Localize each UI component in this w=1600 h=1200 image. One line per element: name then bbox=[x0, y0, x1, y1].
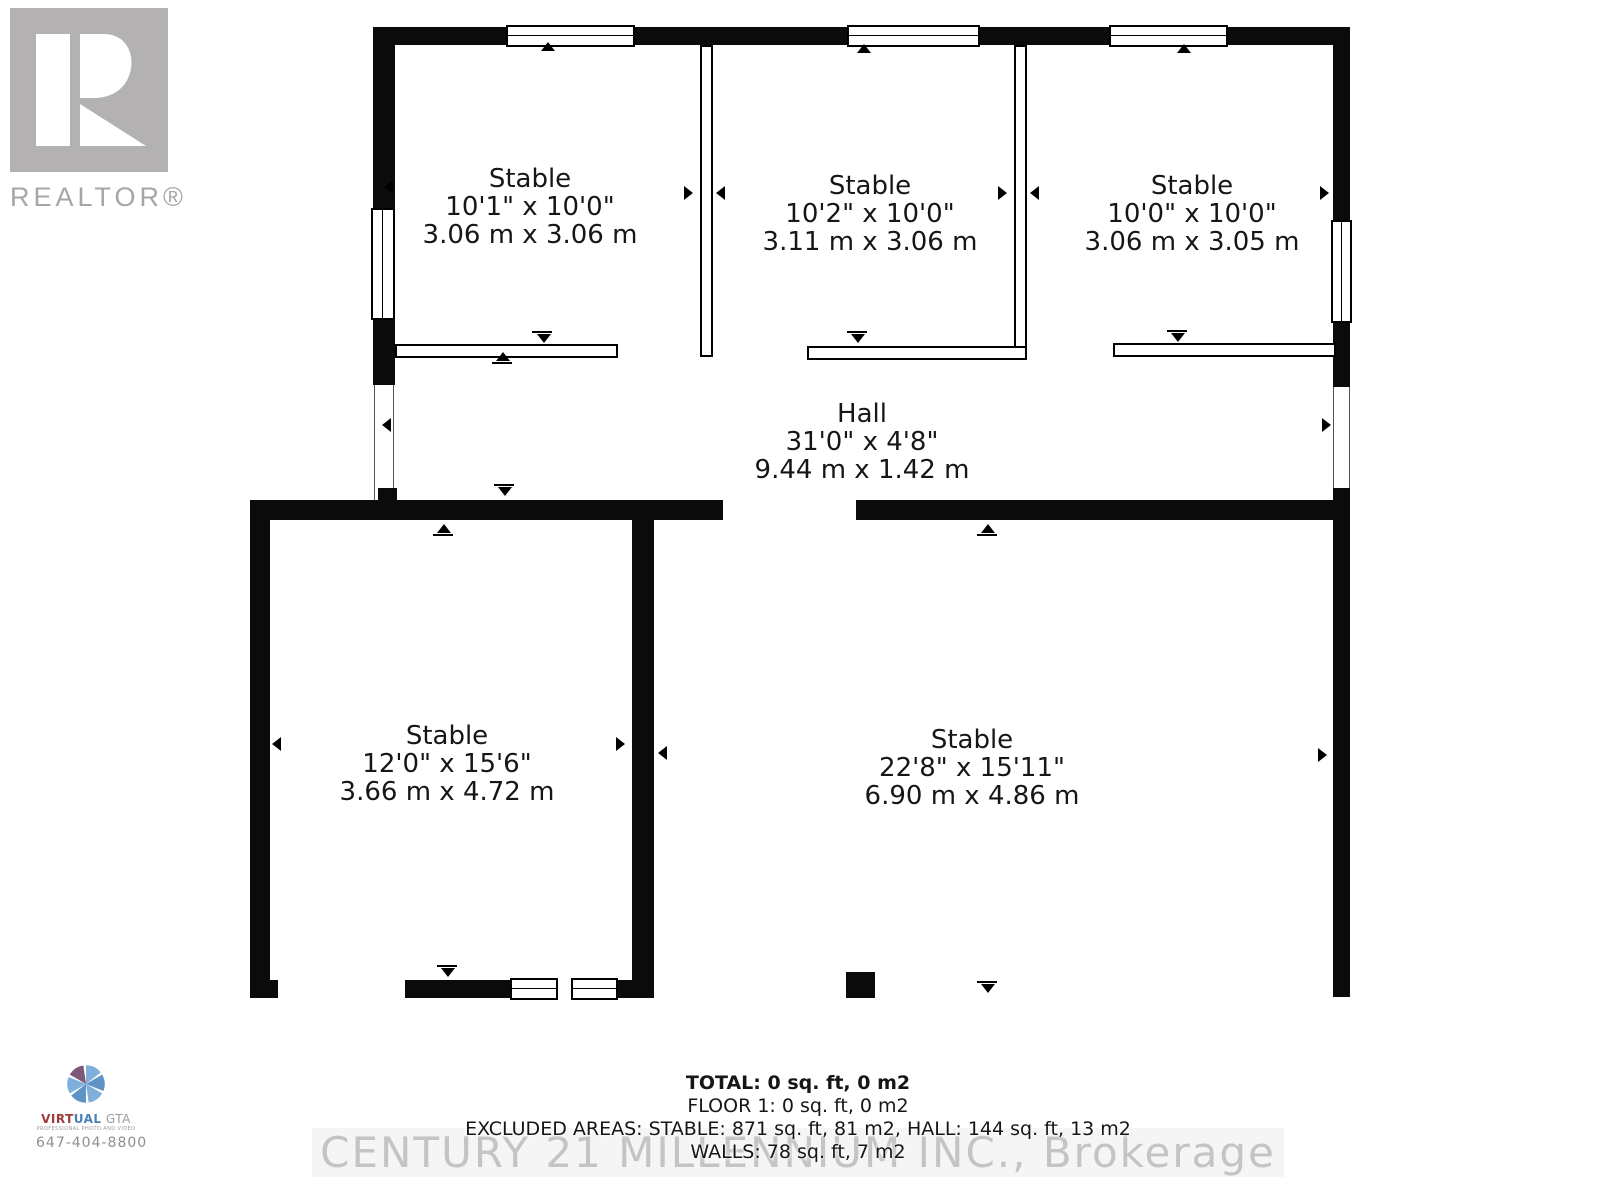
marker-line bbox=[437, 965, 457, 967]
marker-line bbox=[494, 484, 514, 486]
room-label-stable-3: Stable 10'0" x 10'0" 3.06 m x 3.05 m bbox=[1085, 172, 1300, 256]
marker-arrow bbox=[496, 352, 510, 361]
room-dim-metric: 3.66 m x 4.72 m bbox=[340, 778, 555, 806]
marker-arrow bbox=[851, 334, 865, 343]
marker-line bbox=[1167, 330, 1187, 332]
virtual-gta-credit: VIRTUAL GTA PROFESSIONAL PHOTO AND VIDEO… bbox=[36, 1062, 136, 1151]
opening-hall-right bbox=[1333, 387, 1350, 488]
room-name: Stable bbox=[763, 172, 978, 200]
marker-arrow bbox=[1322, 418, 1331, 432]
room-dim-metric: 3.06 m x 3.06 m bbox=[423, 221, 638, 249]
area-summary: TOTAL: 0 sq. ft, 0 m2 FLOOR 1: 0 sq. ft,… bbox=[448, 1072, 1148, 1164]
wall-right-1 bbox=[1333, 27, 1350, 220]
wall-top-3 bbox=[980, 27, 1109, 45]
room-name: Stable bbox=[340, 722, 555, 750]
floorplan-page: REALTOR® bbox=[0, 0, 1600, 1200]
room-dim-imperial: 10'2" x 10'0" bbox=[763, 200, 978, 228]
marker-arrow bbox=[1171, 333, 1185, 342]
window-right bbox=[1331, 220, 1352, 323]
marker-arrow bbox=[1177, 44, 1191, 53]
wall-hall-bottom-right bbox=[856, 500, 1348, 520]
summary-floor: FLOOR 1: 0 sq. ft, 0 m2 bbox=[448, 1095, 1148, 1118]
realtor-logo: REALTOR® bbox=[10, 8, 180, 213]
marker-arrow bbox=[616, 737, 625, 751]
room-label-stable-1: Stable 10'1" x 10'0" 3.06 m x 3.06 m bbox=[423, 165, 638, 249]
room-dim-imperial: 10'1" x 10'0" bbox=[423, 193, 638, 221]
marker-arrow bbox=[857, 44, 871, 53]
room-dim-imperial: 12'0" x 15'6" bbox=[340, 750, 555, 778]
marker-line bbox=[433, 534, 453, 536]
wall-top-4 bbox=[1228, 27, 1350, 45]
marker-arrow bbox=[658, 746, 667, 760]
room-label-stable-5: Stable 22'8" x 15'11" 6.90 m x 4.86 m bbox=[865, 726, 1080, 810]
room-label-hall: Hall 31'0" x 4'8" 9.44 m x 1.42 m bbox=[755, 400, 970, 484]
room-label-stable-2: Stable 10'2" x 10'0" 3.11 m x 3.06 m bbox=[763, 172, 978, 256]
marker-arrow bbox=[498, 487, 512, 496]
window-top-3 bbox=[1109, 25, 1228, 47]
marker-arrow bbox=[1320, 186, 1329, 200]
room-dim-imperial: 22'8" x 15'11" bbox=[865, 754, 1080, 782]
room-name: Hall bbox=[755, 400, 970, 428]
wall-lowerleft-bottom-mid bbox=[405, 980, 510, 998]
wall-divider bbox=[632, 500, 654, 998]
summary-walls: WALLS: 78 sq. ft, 7 m2 bbox=[448, 1141, 1148, 1164]
room-dim-metric: 3.11 m x 3.06 m bbox=[763, 228, 978, 256]
marker-arrow bbox=[384, 180, 393, 194]
marker-arrow bbox=[981, 984, 995, 993]
wall-right-3 bbox=[1333, 488, 1350, 997]
marker-line bbox=[492, 362, 512, 364]
room-name: Stable bbox=[423, 165, 638, 193]
marker-line bbox=[847, 331, 867, 333]
aperture-icon bbox=[64, 1062, 108, 1106]
summary-excluded: EXCLUDED AREAS: STABLE: 871 sq. ft, 81 m… bbox=[448, 1118, 1148, 1141]
window-bottom-2 bbox=[571, 978, 618, 1000]
window-bottom-1 bbox=[510, 978, 558, 1000]
wall-top-2 bbox=[635, 27, 847, 45]
wall-lowerleft-bottom-right bbox=[618, 980, 654, 998]
marker-arrow bbox=[382, 418, 391, 432]
room-dim-metric: 3.06 m x 3.05 m bbox=[1085, 228, 1300, 256]
room-dim-metric: 9.44 m x 1.42 m bbox=[755, 456, 970, 484]
marker-arrow bbox=[537, 334, 551, 343]
summary-total: TOTAL: 0 sq. ft, 0 m2 bbox=[448, 1072, 1148, 1095]
partition-horizontal-3 bbox=[1113, 343, 1336, 357]
marker-line bbox=[977, 981, 997, 983]
partition-vertical-2 bbox=[1014, 45, 1027, 360]
virtual-gta-name: VIRTUAL GTA bbox=[36, 1112, 136, 1126]
marker-arrow bbox=[684, 186, 693, 200]
marker-arrow bbox=[998, 186, 1007, 200]
room-name: Stable bbox=[865, 726, 1080, 754]
virtual-gta-tagline: PROFESSIONAL PHOTO AND VIDEO bbox=[36, 1126, 136, 1132]
window-left bbox=[371, 208, 395, 320]
partition-vertical-1 bbox=[700, 45, 713, 357]
room-dim-imperial: 31'0" x 4'8" bbox=[755, 428, 970, 456]
marker-line bbox=[977, 534, 997, 536]
marker-arrow bbox=[716, 186, 725, 200]
marker-arrow bbox=[1318, 748, 1327, 762]
pillar bbox=[846, 972, 875, 998]
marker-arrow bbox=[441, 968, 455, 977]
room-name: Stable bbox=[1085, 172, 1300, 200]
room-dim-metric: 6.90 m x 4.86 m bbox=[865, 782, 1080, 810]
opening-hall-left bbox=[374, 385, 394, 500]
marker-line bbox=[532, 331, 552, 333]
realtor-label: REALTOR® bbox=[10, 182, 180, 213]
marker-arrow bbox=[272, 737, 281, 751]
realtor-r-icon bbox=[10, 8, 168, 172]
virtual-gta-phone: 647-404-8800 bbox=[36, 1135, 136, 1151]
window-top-1 bbox=[506, 25, 635, 47]
room-dim-imperial: 10'0" x 10'0" bbox=[1085, 200, 1300, 228]
marker-arrow bbox=[1030, 186, 1039, 200]
marker-arrow bbox=[981, 524, 995, 533]
wall-lowerleft-bottom-corner bbox=[250, 980, 278, 998]
partition-horizontal-2 bbox=[807, 346, 1027, 360]
wall-lowerleft-left bbox=[250, 500, 270, 998]
marker-arrow bbox=[541, 42, 555, 51]
marker-arrow bbox=[437, 524, 451, 533]
wall-left-2 bbox=[373, 320, 395, 385]
room-label-stable-4: Stable 12'0" x 15'6" 3.66 m x 4.72 m bbox=[340, 722, 555, 806]
